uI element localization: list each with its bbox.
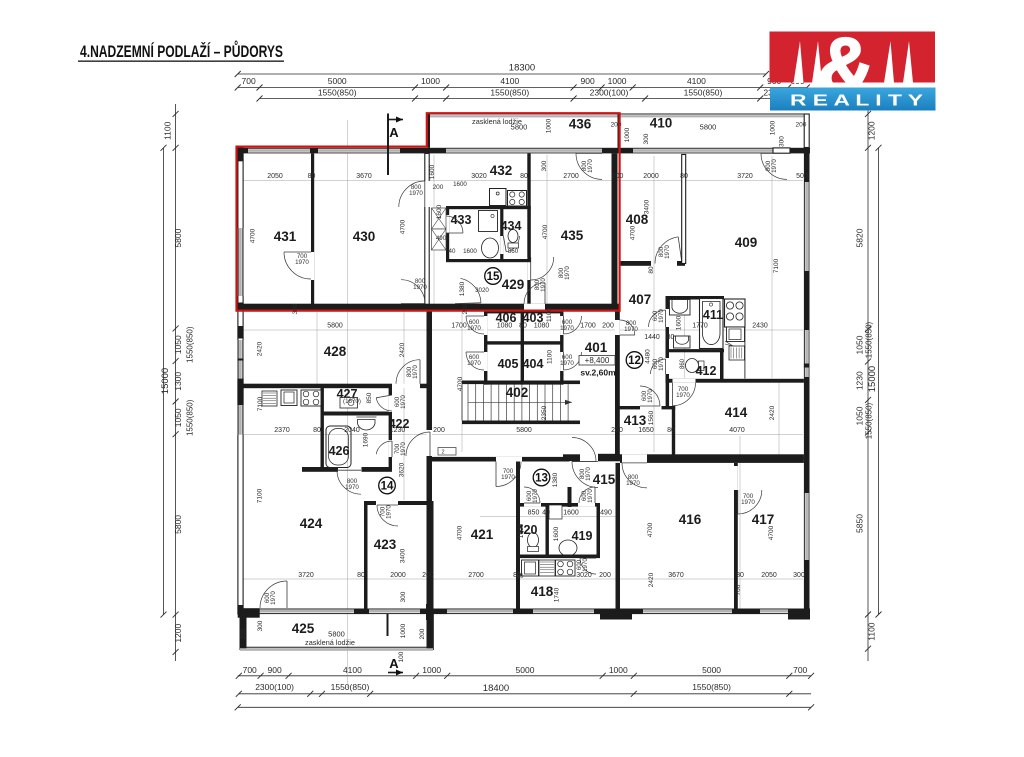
svg-text:860: 860	[680, 358, 686, 369]
svg-text:12: 12	[628, 355, 641, 367]
svg-text:13: 13	[535, 473, 548, 485]
svg-text:410: 410	[650, 116, 673, 131]
svg-text:4700: 4700	[630, 225, 637, 240]
svg-text:2430: 2430	[752, 323, 768, 330]
svg-text:433: 433	[451, 213, 472, 227]
svg-text:415: 415	[593, 472, 616, 487]
svg-text:1970: 1970	[560, 325, 574, 332]
svg-text:425: 425	[292, 621, 315, 636]
svg-text:1970: 1970	[741, 499, 755, 506]
svg-text:428: 428	[324, 344, 347, 359]
svg-text:1600: 1600	[563, 510, 579, 517]
svg-text:1970: 1970	[413, 284, 427, 291]
svg-text:80: 80	[308, 173, 316, 180]
svg-text:1970: 1970	[560, 360, 574, 367]
svg-text:1970: 1970	[585, 467, 592, 481]
svg-text:431: 431	[274, 229, 297, 244]
svg-text:200: 200	[611, 427, 623, 434]
svg-text:4100: 4100	[343, 665, 362, 675]
svg-text:1600: 1600	[553, 526, 560, 541]
svg-text:2420: 2420	[399, 342, 406, 357]
svg-text:1600: 1600	[453, 181, 467, 188]
svg-text:2370: 2370	[274, 427, 290, 434]
svg-text:435: 435	[561, 228, 584, 243]
svg-text:7100: 7100	[257, 396, 264, 411]
svg-text:407: 407	[629, 292, 652, 307]
svg-text:404: 404	[523, 357, 544, 371]
svg-text:1970: 1970	[270, 591, 277, 605]
svg-text:18300: 18300	[509, 63, 535, 74]
svg-text:1550(850): 1550(850)	[684, 88, 723, 98]
svg-text:18400: 18400	[483, 683, 509, 694]
svg-text:3670: 3670	[356, 173, 372, 180]
svg-text:80: 80	[519, 323, 527, 330]
svg-text:1970: 1970	[532, 489, 539, 503]
svg-text:300: 300	[541, 160, 548, 171]
svg-text:200: 200	[612, 173, 624, 180]
svg-text:1970: 1970	[664, 245, 671, 259]
svg-text:1550(850): 1550(850)	[865, 402, 874, 439]
svg-text:1440: 1440	[644, 334, 660, 341]
svg-text:1200: 1200	[173, 623, 183, 642]
svg-text:7100: 7100	[773, 258, 780, 273]
svg-text:1000: 1000	[608, 76, 627, 86]
svg-text:2000: 2000	[643, 173, 659, 180]
svg-text:200: 200	[795, 122, 806, 129]
svg-text:1970: 1970	[400, 395, 407, 409]
svg-text:1560: 1560	[648, 410, 655, 425]
svg-text:3720: 3720	[737, 173, 753, 180]
svg-text:401: 401	[585, 340, 608, 355]
svg-text:1380: 1380	[552, 472, 559, 487]
svg-text:1050: 1050	[173, 408, 183, 427]
svg-text:1100: 1100	[867, 622, 877, 641]
svg-text:A: A	[389, 125, 399, 140]
svg-text:80: 80	[648, 266, 655, 274]
svg-text:1970: 1970	[540, 278, 547, 292]
svg-text:1970: 1970	[412, 365, 419, 379]
svg-text:5800: 5800	[516, 427, 532, 434]
svg-text:80: 80	[517, 573, 524, 580]
svg-text:5800: 5800	[700, 123, 717, 132]
svg-text:1000: 1000	[609, 665, 628, 675]
svg-text:2350: 2350	[541, 405, 548, 420]
svg-text:1970: 1970	[467, 325, 481, 332]
svg-text:zasklená lodžie: zasklená lodžie	[305, 638, 355, 647]
svg-text:3620: 3620	[399, 462, 406, 477]
svg-text:1970: 1970	[295, 259, 309, 266]
svg-text:2420: 2420	[257, 341, 264, 356]
svg-text:15: 15	[487, 271, 500, 283]
svg-text:4700: 4700	[457, 376, 464, 391]
svg-text:409: 409	[735, 235, 758, 250]
svg-text:3020: 3020	[576, 572, 592, 579]
svg-text:2420: 2420	[769, 405, 776, 420]
svg-text:4.NADZEMNÍ PODLAŽÍ – PŮDORYS: 4.NADZEMNÍ PODLAŽÍ – PŮDORYS	[80, 41, 283, 61]
svg-text:1050: 1050	[173, 335, 183, 354]
svg-text:426: 426	[329, 444, 350, 458]
svg-text:5850: 5850	[855, 514, 865, 533]
svg-text:1000: 1000	[421, 76, 440, 86]
svg-text:1080: 1080	[534, 323, 550, 330]
svg-text:1970: 1970	[501, 474, 515, 481]
svg-text:860: 860	[508, 248, 519, 255]
svg-text:2050: 2050	[267, 173, 283, 180]
svg-text:7100: 7100	[257, 488, 264, 503]
svg-text:900: 900	[581, 76, 595, 86]
svg-text:411: 411	[703, 308, 723, 322]
svg-text:700: 700	[735, 584, 742, 595]
svg-text:200: 200	[433, 184, 444, 191]
svg-text:3400: 3400	[400, 548, 407, 563]
svg-text:200: 200	[602, 323, 614, 330]
svg-text:200: 200	[599, 572, 611, 579]
svg-text:1550(850): 1550(850)	[692, 682, 731, 692]
svg-text:1970: 1970	[587, 489, 594, 503]
svg-text:1300: 1300	[173, 372, 183, 391]
svg-text:5800: 5800	[173, 228, 183, 247]
svg-text:200: 200	[433, 427, 445, 434]
svg-text:1740: 1740	[554, 587, 561, 602]
svg-text:1050: 1050	[855, 406, 865, 425]
svg-text:200: 200	[422, 572, 434, 579]
svg-text:1080: 1080	[497, 323, 513, 330]
svg-text:1700: 1700	[451, 323, 467, 330]
svg-text:418: 418	[531, 584, 554, 599]
svg-text:200: 200	[240, 628, 247, 639]
svg-text:1200: 1200	[867, 121, 877, 140]
svg-text:2: 2	[441, 450, 444, 456]
svg-text:416: 416	[679, 512, 702, 527]
svg-text:421: 421	[471, 527, 494, 542]
svg-text:2420: 2420	[648, 572, 655, 587]
svg-text:5000: 5000	[328, 76, 347, 86]
svg-text:4100: 4100	[687, 76, 706, 86]
svg-text:1230: 1230	[855, 371, 865, 390]
svg-text:3400: 3400	[644, 199, 651, 214]
svg-text:300: 300	[778, 136, 785, 147]
svg-text:R E A L I T Y: R E A L I T Y	[790, 93, 924, 110]
svg-text:1600: 1600	[676, 315, 683, 330]
svg-text:sv.2,60m: sv.2,60m	[580, 368, 616, 378]
svg-text:1230: 1230	[390, 427, 406, 434]
svg-text:100: 100	[398, 651, 405, 662]
svg-text:1970: 1970	[582, 558, 589, 572]
svg-text:434: 434	[501, 219, 522, 233]
svg-text:4700: 4700	[542, 224, 549, 239]
svg-text:300: 300	[257, 620, 264, 631]
svg-text:402: 402	[506, 385, 529, 400]
svg-text:1970: 1970	[676, 392, 690, 399]
svg-text:1970: 1970	[345, 484, 359, 491]
svg-text:5800: 5800	[511, 123, 528, 132]
svg-text:300: 300	[400, 591, 407, 602]
svg-text:15000: 15000	[867, 366, 878, 392]
svg-text:1100: 1100	[547, 350, 554, 364]
svg-text:80: 80	[313, 427, 321, 434]
svg-text:1100: 1100	[163, 121, 173, 140]
svg-text:4070: 4070	[729, 427, 745, 434]
svg-text:4700: 4700	[647, 522, 654, 537]
svg-text:1000: 1000	[400, 623, 407, 638]
svg-text:40: 40	[449, 248, 456, 255]
svg-text:1970: 1970	[658, 357, 665, 371]
svg-text:2700: 2700	[468, 572, 484, 579]
svg-text:1380: 1380	[459, 281, 466, 296]
svg-text:3720: 3720	[298, 572, 314, 579]
svg-text:1970: 1970	[386, 505, 393, 519]
svg-text:3020: 3020	[471, 173, 487, 180]
svg-text:1550(850): 1550(850)	[318, 88, 357, 98]
svg-text:300: 300	[292, 303, 299, 314]
svg-text:1650: 1650	[638, 427, 654, 434]
svg-text:432: 432	[490, 163, 513, 178]
svg-text:80: 80	[736, 572, 744, 579]
svg-text:1690: 1690	[363, 432, 370, 447]
svg-text:417: 417	[752, 512, 775, 527]
svg-text:A: A	[389, 656, 399, 671]
svg-text:2040: 2040	[344, 427, 360, 434]
svg-text:1700: 1700	[580, 323, 596, 330]
svg-text:80: 80	[667, 427, 675, 434]
svg-text:1550(850): 1550(850)	[490, 88, 529, 98]
svg-text:2300(100): 2300(100)	[255, 682, 294, 692]
svg-text:5800: 5800	[327, 323, 343, 330]
svg-text:700: 700	[242, 76, 256, 86]
svg-text:2700: 2700	[563, 173, 579, 180]
svg-text:1970: 1970	[626, 480, 640, 487]
svg-text:5000: 5000	[702, 665, 721, 675]
svg-text:1550(850): 1550(850)	[186, 326, 195, 363]
svg-text:4700: 4700	[768, 525, 775, 540]
svg-text:1550(850): 1550(850)	[865, 321, 874, 358]
svg-text:1600: 1600	[429, 164, 436, 179]
svg-text:1600: 1600	[463, 248, 477, 255]
svg-text:1000: 1000	[546, 118, 553, 133]
svg-text:490: 490	[436, 235, 447, 242]
svg-text:4100: 4100	[500, 76, 519, 86]
svg-text:500: 500	[796, 173, 808, 180]
svg-text:436: 436	[569, 117, 592, 132]
svg-text:5000: 5000	[516, 665, 535, 675]
svg-text:424: 424	[300, 516, 323, 531]
svg-text:1970: 1970	[409, 190, 423, 197]
svg-text:5800: 5800	[173, 515, 183, 534]
svg-text:+8,400: +8,400	[585, 356, 610, 365]
svg-text:412: 412	[696, 364, 717, 378]
svg-text:414: 414	[725, 405, 748, 420]
svg-text:429: 429	[502, 277, 525, 292]
svg-text:1000: 1000	[624, 127, 631, 142]
svg-text:1970: 1970	[467, 360, 481, 367]
svg-text:3020: 3020	[475, 287, 489, 294]
svg-text:405: 405	[498, 357, 519, 371]
svg-text:1600: 1600	[436, 204, 443, 219]
svg-text:1970: 1970	[658, 309, 665, 323]
svg-text:300: 300	[643, 133, 650, 144]
svg-text:80: 80	[520, 173, 528, 180]
svg-text:423: 423	[374, 537, 397, 552]
svg-text:300: 300	[793, 572, 805, 579]
svg-text:80: 80	[357, 572, 365, 579]
svg-text:1970: 1970	[587, 159, 594, 173]
svg-text:413: 413	[624, 413, 647, 428]
svg-text:1050: 1050	[855, 335, 865, 354]
svg-text:1970: 1970	[624, 326, 638, 333]
svg-text:4700: 4700	[457, 525, 464, 540]
svg-text:1970: 1970	[647, 389, 654, 403]
svg-text:80: 80	[680, 173, 688, 180]
svg-text:850: 850	[366, 392, 373, 403]
svg-text:1970: 1970	[771, 159, 778, 173]
svg-text:1550(850): 1550(850)	[186, 399, 195, 436]
svg-text:850: 850	[528, 510, 540, 517]
svg-text:419: 419	[572, 529, 593, 543]
svg-text:2050: 2050	[761, 572, 777, 579]
svg-text:4700: 4700	[250, 228, 257, 243]
svg-text:80: 80	[667, 334, 675, 341]
svg-text:1100: 1100	[546, 308, 553, 322]
svg-text:430: 430	[353, 229, 376, 244]
svg-text:15000: 15000	[160, 368, 171, 394]
svg-text:700: 700	[243, 665, 257, 675]
svg-text:490: 490	[600, 510, 612, 517]
svg-text:1770: 1770	[692, 323, 708, 330]
svg-text:1550(850): 1550(850)	[331, 682, 370, 692]
svg-text:200: 200	[462, 303, 469, 314]
svg-text:1970: 1970	[564, 266, 571, 280]
svg-text:1000: 1000	[769, 120, 776, 135]
svg-text:2000: 2000	[390, 572, 406, 579]
svg-text:14: 14	[381, 481, 394, 493]
svg-text:2300(100): 2300(100)	[590, 88, 629, 98]
svg-text:900: 900	[268, 665, 282, 675]
svg-text:1000: 1000	[422, 665, 441, 675]
svg-text:700: 700	[793, 665, 807, 675]
svg-text:4480: 4480	[645, 349, 652, 364]
svg-text:4700: 4700	[400, 219, 407, 234]
svg-text:40: 40	[542, 510, 550, 517]
svg-text:(1670): (1670)	[343, 398, 361, 405]
svg-text:3670: 3670	[668, 572, 684, 579]
svg-text:5820: 5820	[855, 228, 865, 247]
svg-text:1600: 1600	[518, 523, 525, 538]
svg-text:200: 200	[419, 628, 426, 639]
